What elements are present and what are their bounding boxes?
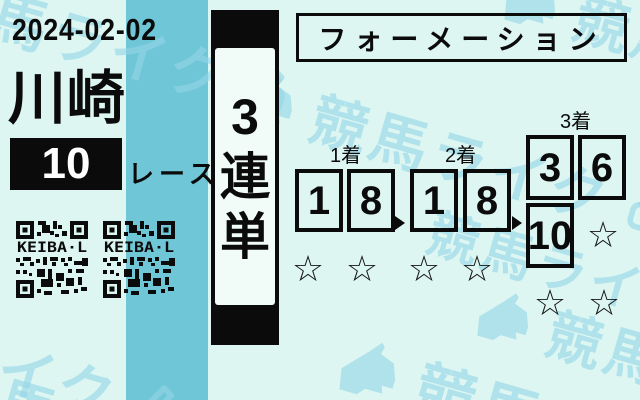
bet-type-char: 3 xyxy=(231,92,259,142)
horse-box-1st-1: 1 xyxy=(295,169,343,232)
horse-box-3rd-3: 10 xyxy=(526,203,574,268)
bet-type-char: 連 xyxy=(220,152,270,202)
star-icon: ☆ xyxy=(342,252,382,288)
star-icon: ☆ xyxy=(583,218,623,254)
horse-box-3rd-1: 3 xyxy=(526,135,574,200)
horse-number: 10 xyxy=(528,216,573,256)
bet-type-bar: 3 連 単 xyxy=(211,10,279,345)
qr-code-right xyxy=(103,221,175,298)
horse-box-3rd-2: 6 xyxy=(578,135,626,200)
venue-name: 川崎 xyxy=(8,70,126,128)
star-icon: ☆ xyxy=(404,252,444,288)
race-date: 2024-02-02 xyxy=(12,12,157,48)
star-icon: ☆ xyxy=(584,286,624,322)
qr-code-left xyxy=(16,221,88,298)
method-box: フォーメーション xyxy=(296,13,627,62)
star-icon: ☆ xyxy=(457,252,497,288)
horse-number: 6 xyxy=(591,148,613,188)
horse-number: 1 xyxy=(423,181,445,221)
horse-number: 8 xyxy=(476,181,498,221)
horse-box-2nd-1: 1 xyxy=(410,169,458,232)
bet-ticket: KEIBA·L xyxy=(0,0,640,400)
horse-number: 8 xyxy=(360,181,382,221)
race-number: 10 xyxy=(42,142,91,186)
arrow-right-icon xyxy=(512,216,522,230)
group-label-1st: 1着 xyxy=(330,146,361,166)
bet-type-panel: 3 連 単 xyxy=(215,48,275,305)
horse-number: 3 xyxy=(539,148,561,188)
group-label-3rd: 3着 xyxy=(560,112,591,132)
horse-number: 1 xyxy=(308,181,330,221)
horse-box-2nd-2: 8 xyxy=(463,169,511,232)
star-icon: ☆ xyxy=(530,286,570,322)
method-label: フォーメーション xyxy=(318,18,604,58)
group-label-2nd: 2着 xyxy=(445,146,476,166)
race-number-box: 10 xyxy=(10,138,122,190)
star-icon: ☆ xyxy=(288,252,328,288)
race-suffix-label: レース xyxy=(128,161,220,187)
arrow-right-icon xyxy=(395,216,405,230)
bet-type-char: 単 xyxy=(220,212,270,262)
horse-box-1st-2: 8 xyxy=(347,169,395,232)
